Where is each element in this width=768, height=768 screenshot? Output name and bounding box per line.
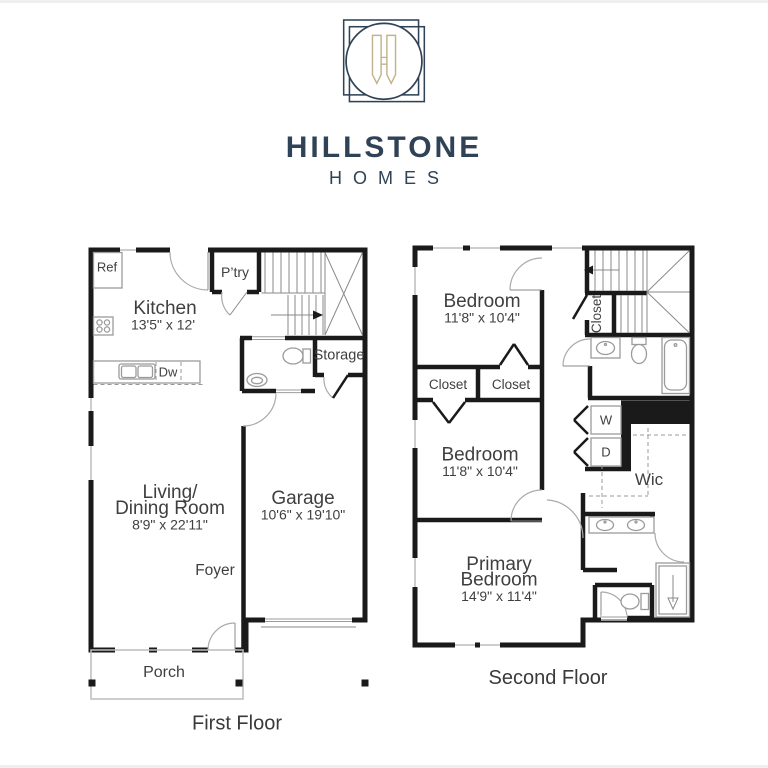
top-edge-strip [0,0,768,3]
porch-post [89,680,96,687]
pantry-label: P’try [221,264,249,280]
first-floor-caption: First Floor [192,713,282,735]
dryer-label: D [601,445,610,460]
bedroom1-dims: 11'8" x 10'4" [444,310,520,326]
living-dims: 8'9" x 22'11" [132,517,208,533]
wic-label: Wic [635,470,664,489]
toilet-icon [283,348,311,364]
foyer-label: Foyer [195,562,235,579]
ff-stairwell [262,253,363,336]
double-vanity-icon [589,517,654,533]
porch-label: Porch [143,664,185,681]
closet-stairs-label: Closet [589,295,604,334]
dishwasher-label: Dw [159,365,178,380]
sf-chase-bar [621,401,631,472]
sink-icon [247,374,267,387]
toilet-icon [621,594,649,610]
kitchen-sink-icon [119,364,155,379]
hillstone-logo-icon [336,18,432,118]
sf-stairwell-lower [616,295,645,333]
bath-vanity-icon [591,338,620,359]
first-floor-plan: Ref Kitchen 13'5" x 12' P’try Dw Storage… [75,240,375,735]
ref-label: Ref [97,260,118,275]
porch-post [362,680,369,687]
bedroom2-dims: 11'8" x 10'4" [442,463,518,479]
sf-chase [621,401,690,425]
second-floor-plan: Bedroom 11'8" x 10'4" Closet Closet Clos… [405,240,705,700]
shower-icon [656,563,690,617]
garage-dims: 10'6" x 19'10" [261,507,346,523]
kitchen-dims: 13'5" x 12' [131,317,195,333]
porch-outline [89,650,369,699]
storage-label: Storage [314,348,365,364]
brand-name: HILLSTONE [0,131,768,165]
porch-post [236,680,243,687]
ff-stair-threshold [252,337,285,340]
closet-left-label: Closet [429,377,468,392]
closet-right-label: Closet [492,377,531,392]
garage-door-icon [261,617,356,627]
bathtub-icon [662,338,690,394]
primary-dims: 14'9" x 11'4" [461,588,537,604]
floorplan-sheet: { "brand": { "name": "HILLSTONE", "tagli… [0,0,768,768]
second-floor-caption: Second Floor [489,667,608,689]
stove-icon [94,317,114,335]
logo-circle [346,23,422,99]
brand-tagline: HOMES [0,168,768,189]
washer-label: W [600,413,613,428]
toilet-icon [632,338,647,364]
